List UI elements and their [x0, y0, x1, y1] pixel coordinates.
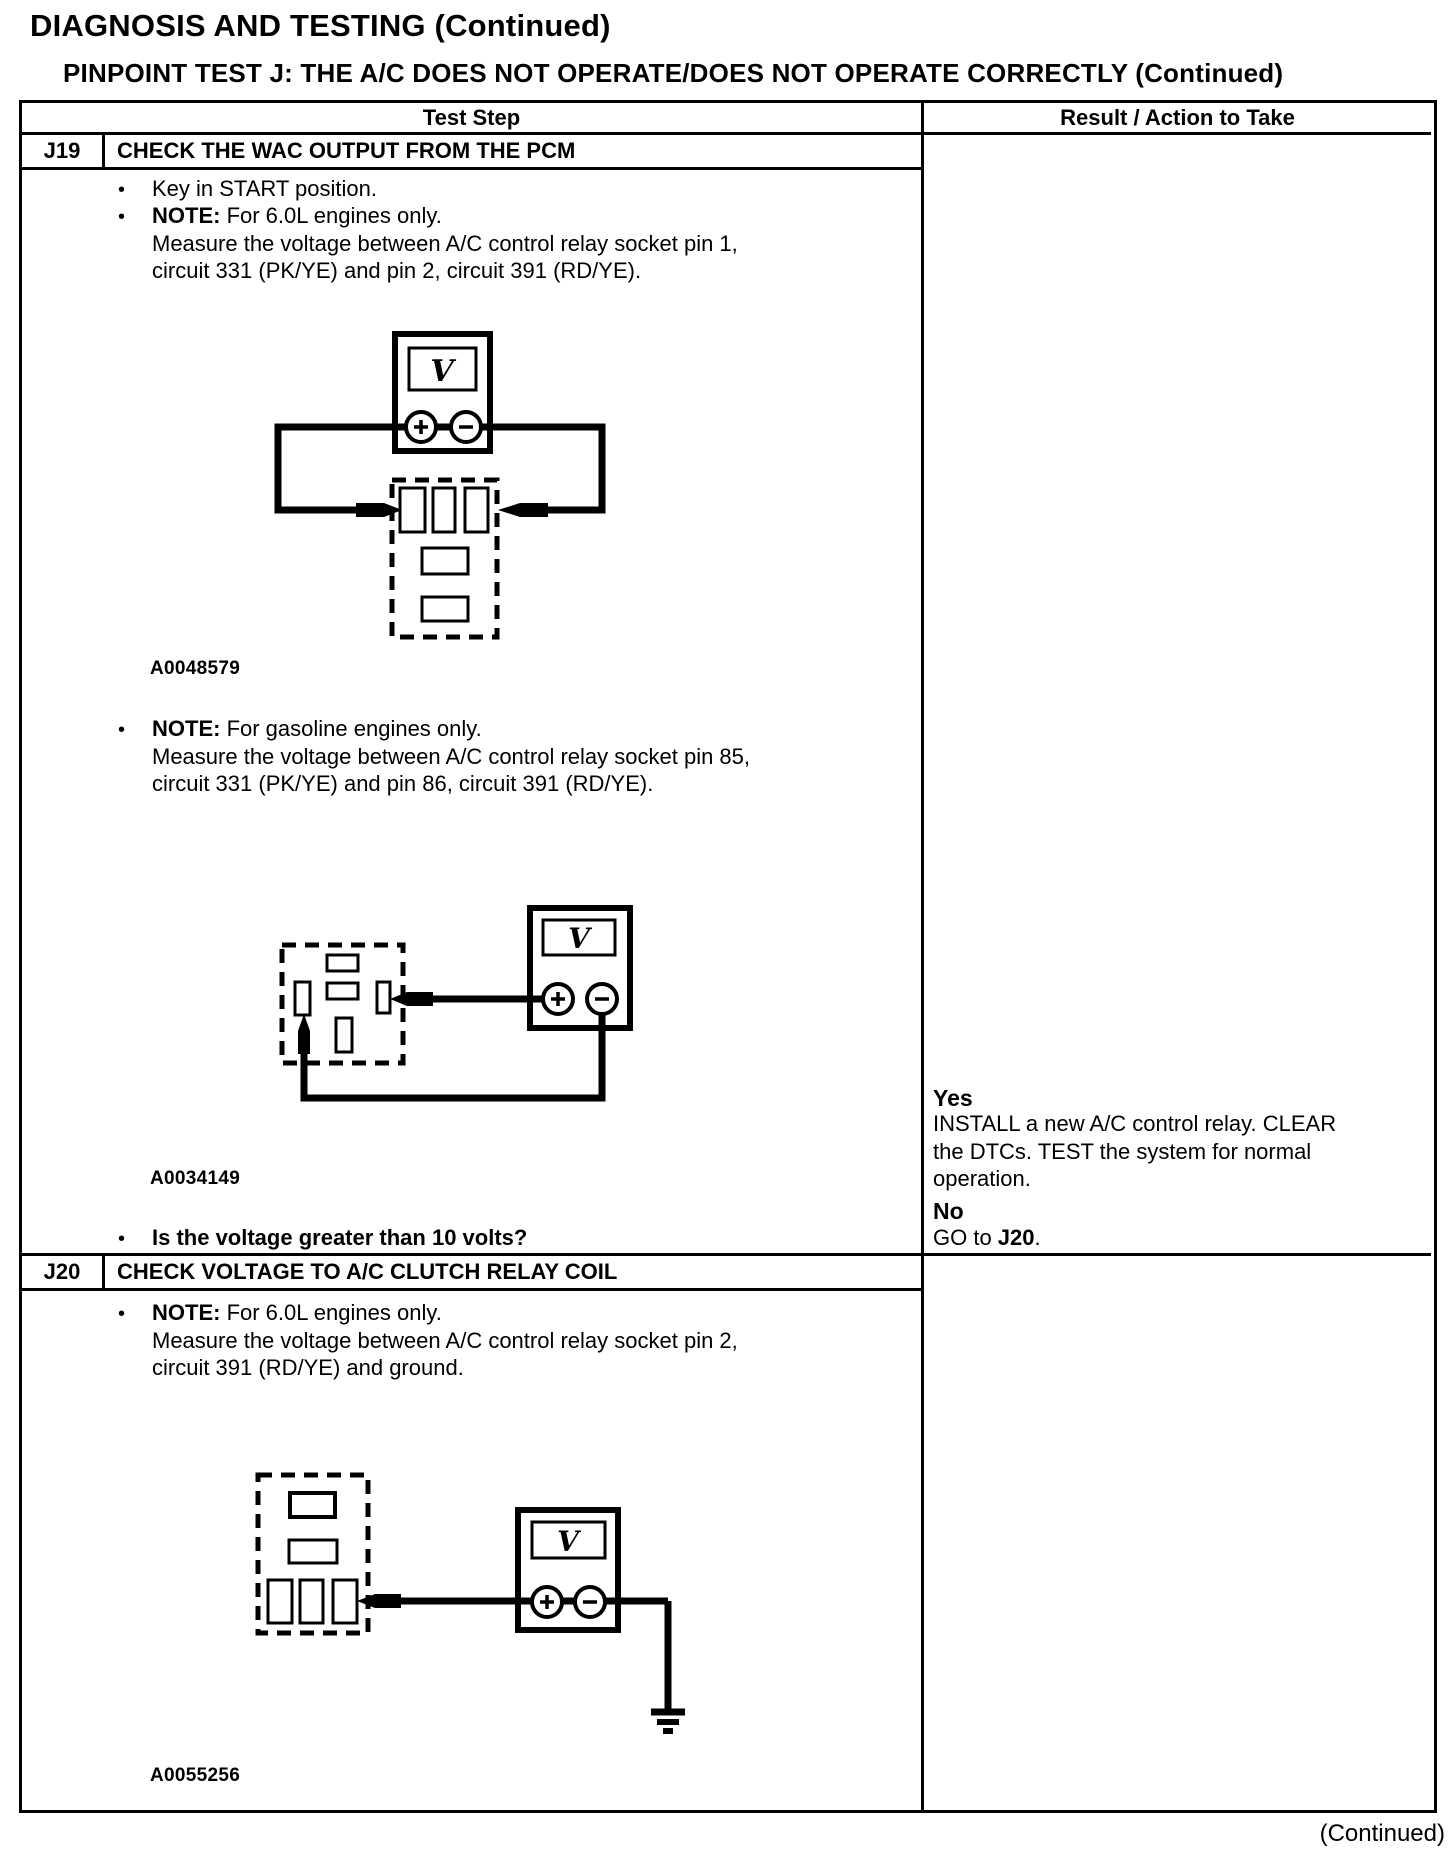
column-divider	[921, 103, 924, 1810]
probe-icon	[357, 1594, 401, 1608]
j20-id-divider	[102, 1256, 105, 1288]
j20-measure1-line2: circuit 391 (RD/YE) and ground.	[152, 1355, 464, 1381]
bullet-icon: •	[118, 1301, 152, 1327]
j19-step-key-start: •Key in START position.	[118, 176, 377, 203]
page-title: DIAGNOSIS AND TESTING (Continued)	[30, 8, 611, 44]
j19-question: •Is the voltage greater than 10 volts?	[118, 1225, 527, 1252]
continued-footer: (Continued)	[1320, 1820, 1445, 1848]
j19-row-title: CHECK THE WAC OUTPUT FROM THE PCM	[117, 135, 575, 167]
bullet-icon: •	[118, 717, 152, 743]
note-text: For 6.0L engines only.	[220, 203, 441, 228]
j19-row-id: J19	[22, 135, 102, 167]
socket-pin	[465, 488, 488, 532]
j19-note-gasoline: •NOTE: For gasoline engines only.	[118, 716, 482, 743]
bullet-icon: •	[118, 1226, 152, 1252]
step-text: Key in START position.	[152, 176, 377, 201]
manual-page: DIAGNOSIS AND TESTING (Continued) PINPOI…	[0, 0, 1456, 1860]
goto-target: J20	[998, 1225, 1035, 1250]
socket-pin	[290, 1493, 335, 1517]
voltmeter-relay-diagram-1: V	[256, 325, 616, 655]
positive-lead-wire	[278, 427, 395, 510]
probe-icon	[298, 1014, 310, 1054]
socket-pin	[336, 1018, 352, 1052]
note-label: NOTE:	[152, 716, 220, 741]
voltmeter-v-label: V	[568, 922, 593, 955]
column-header-result: Result / Action to Take	[924, 103, 1431, 132]
socket-pin	[377, 982, 390, 1013]
question-text: Is the voltage greater than 10 volts?	[152, 1225, 527, 1250]
result-yes-line3: operation.	[933, 1166, 1031, 1192]
j19-measure2-line2: circuit 331 (PK/YE) and pin 86, circuit …	[152, 771, 653, 797]
socket-pin	[333, 1580, 357, 1623]
j19-measure1-line1: Measure the voltage between A/C control …	[152, 231, 738, 257]
j20-measure1-line1: Measure the voltage between A/C control …	[152, 1328, 738, 1354]
voltmeter-v-label: V	[557, 1525, 582, 1558]
probe-icon	[498, 503, 548, 517]
voltmeter-relay-diagram-3: V	[255, 1470, 685, 1750]
j20-row-id: J20	[22, 1256, 102, 1288]
j20-row-title: CHECK VOLTAGE TO A/C CLUTCH RELAY COIL	[117, 1256, 617, 1288]
figure-label: A0034149	[150, 1168, 240, 1190]
bullet-icon: •	[118, 177, 152, 203]
figure-label: A0048579	[150, 658, 240, 680]
ground-icon	[651, 1712, 685, 1731]
socket-pin	[289, 1540, 337, 1563]
socket-pin	[300, 1580, 323, 1623]
result-yes-line2: the DTCs. TEST the system for normal	[933, 1139, 1311, 1165]
socket-pin	[400, 488, 425, 532]
j20-title-divider	[22, 1288, 921, 1291]
result-no-label: No	[933, 1198, 964, 1224]
note-text: For 6.0L engines only.	[220, 1300, 441, 1325]
j19-note-6-0l: •NOTE: For 6.0L engines only.	[118, 203, 442, 230]
socket-pin	[268, 1580, 292, 1623]
goto-prefix: GO to	[933, 1225, 998, 1250]
j20-note-6-0l: •NOTE: For 6.0L engines only.	[118, 1300, 442, 1327]
goto-suffix: .	[1035, 1225, 1041, 1250]
pinpoint-test-table: Test Step Result / Action to Take J19 CH…	[19, 100, 1437, 1813]
j19-title-divider	[22, 167, 921, 170]
column-header-test-step: Test Step	[22, 103, 921, 132]
result-yes-label: Yes	[933, 1085, 973, 1111]
figure-label: A0055256	[150, 1765, 240, 1787]
result-no-action: GO to J20.	[933, 1225, 1041, 1251]
page-subtitle: PINPOINT TEST J: THE A/C DOES NOT OPERAT…	[63, 58, 1283, 89]
probe-icon	[356, 503, 402, 517]
j19-id-divider	[102, 135, 105, 167]
result-yes-line1: INSTALL a new A/C control relay. CLEAR	[933, 1111, 1336, 1137]
socket-pin	[422, 548, 468, 574]
voltmeter-relay-diagram-2: V	[275, 900, 740, 1135]
socket-pin	[327, 955, 358, 971]
negative-lead-wire	[490, 427, 602, 510]
socket-pin	[422, 597, 468, 621]
socket-pin	[327, 983, 358, 999]
note-text: For gasoline engines only.	[220, 716, 481, 741]
note-label: NOTE:	[152, 1300, 220, 1325]
note-label: NOTE:	[152, 203, 220, 228]
socket-pin	[433, 488, 455, 532]
j19-measure2-line1: Measure the voltage between A/C control …	[152, 744, 750, 770]
probe-icon	[390, 992, 433, 1006]
j19-measure1-line2: circuit 331 (PK/YE) and pin 2, circuit 3…	[152, 258, 641, 284]
voltmeter-v-label: V	[430, 354, 456, 389]
bullet-icon: •	[118, 204, 152, 230]
socket-pin	[295, 982, 310, 1015]
